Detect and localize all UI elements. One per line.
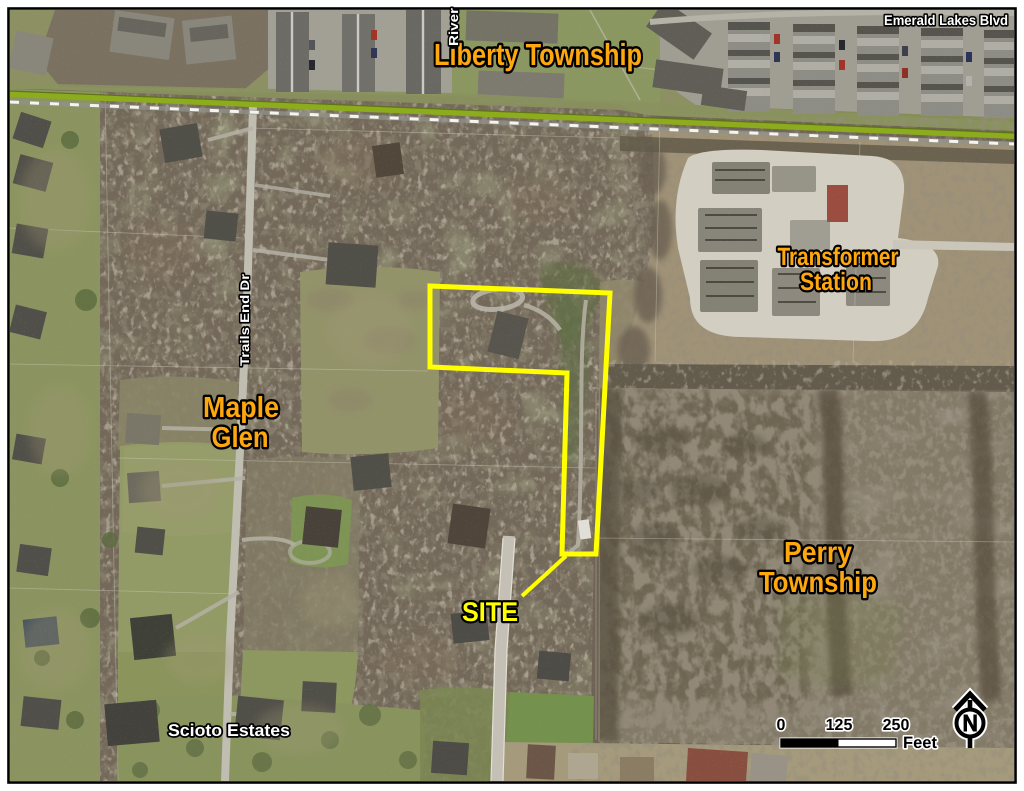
svg-text:Emerald Lakes Blvd: Emerald Lakes Blvd — [884, 12, 1008, 28]
svg-text:Scioto Estates: Scioto Estates — [168, 721, 290, 740]
svg-text:125: 125 — [826, 717, 853, 734]
svg-text:0: 0 — [777, 717, 786, 734]
svg-text:Feet: Feet — [903, 734, 937, 752]
svg-text:Perry: Perry — [784, 537, 852, 569]
svg-text:Maple: Maple — [203, 392, 279, 424]
svg-text:Transformer: Transformer — [778, 243, 899, 271]
svg-text:Station: Station — [800, 268, 872, 296]
svg-text:River: River — [446, 8, 461, 46]
svg-text:Liberty Township: Liberty Township — [434, 38, 642, 72]
svg-text:Township: Township — [759, 567, 877, 599]
svg-text:250: 250 — [883, 717, 910, 734]
svg-text:SITE: SITE — [462, 597, 518, 627]
svg-text:Glen: Glen — [212, 422, 269, 454]
svg-text:Trails End Dr: Trails End Dr — [238, 274, 252, 366]
